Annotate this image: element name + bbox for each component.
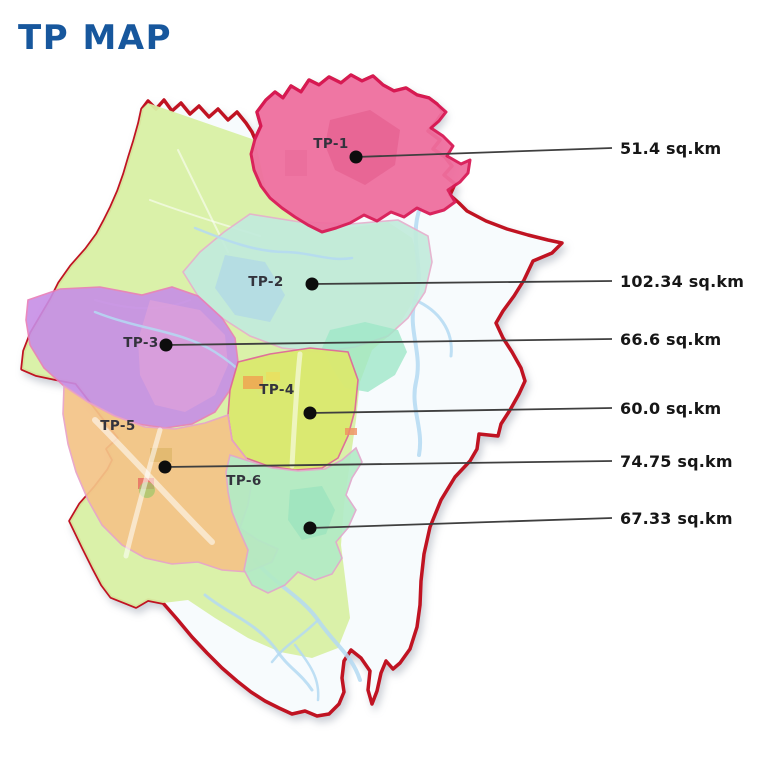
- tp-1-landuse-patch: [285, 150, 307, 176]
- tp-map: TP-1 TP-2 TP-3 TP-4 TP-5 TP-6 51.4 sq.km…: [0, 0, 768, 780]
- region-label-tp-2: TP-2: [248, 274, 283, 290]
- area-labels: 51.4 sq.km 102.34 sq.km 66.6 sq.km 60.0 …: [620, 139, 744, 528]
- leader-dot-tp-6: [304, 522, 317, 535]
- region-label-tp-5: TP-5: [100, 418, 135, 434]
- region-label-tp-3: TP-3: [123, 335, 158, 351]
- region-label-tp-1: TP-1: [313, 136, 348, 152]
- area-label-tp-2: 102.34 sq.km: [620, 272, 744, 291]
- region-label-tp-4: TP-4: [259, 382, 294, 398]
- area-label-tp-1: 51.4 sq.km: [620, 139, 721, 158]
- region-label-tp-6: TP-6: [226, 473, 261, 489]
- area-label-tp-3: 66.6 sq.km: [620, 330, 721, 349]
- leader-dot-tp-2: [306, 278, 319, 291]
- leader-dot-tp-4: [304, 407, 317, 420]
- area-label-tp-4: 60.0 sq.km: [620, 399, 721, 418]
- leader-dot-tp-5: [159, 461, 172, 474]
- area-label-tp-6: 67.33 sq.km: [620, 509, 733, 528]
- leader-dot-tp-1: [350, 151, 363, 164]
- area-label-tp-5: 74.75 sq.km: [620, 452, 733, 471]
- tp-map-page: TP MAP: [0, 0, 768, 780]
- leader-dot-tp-3: [160, 339, 173, 352]
